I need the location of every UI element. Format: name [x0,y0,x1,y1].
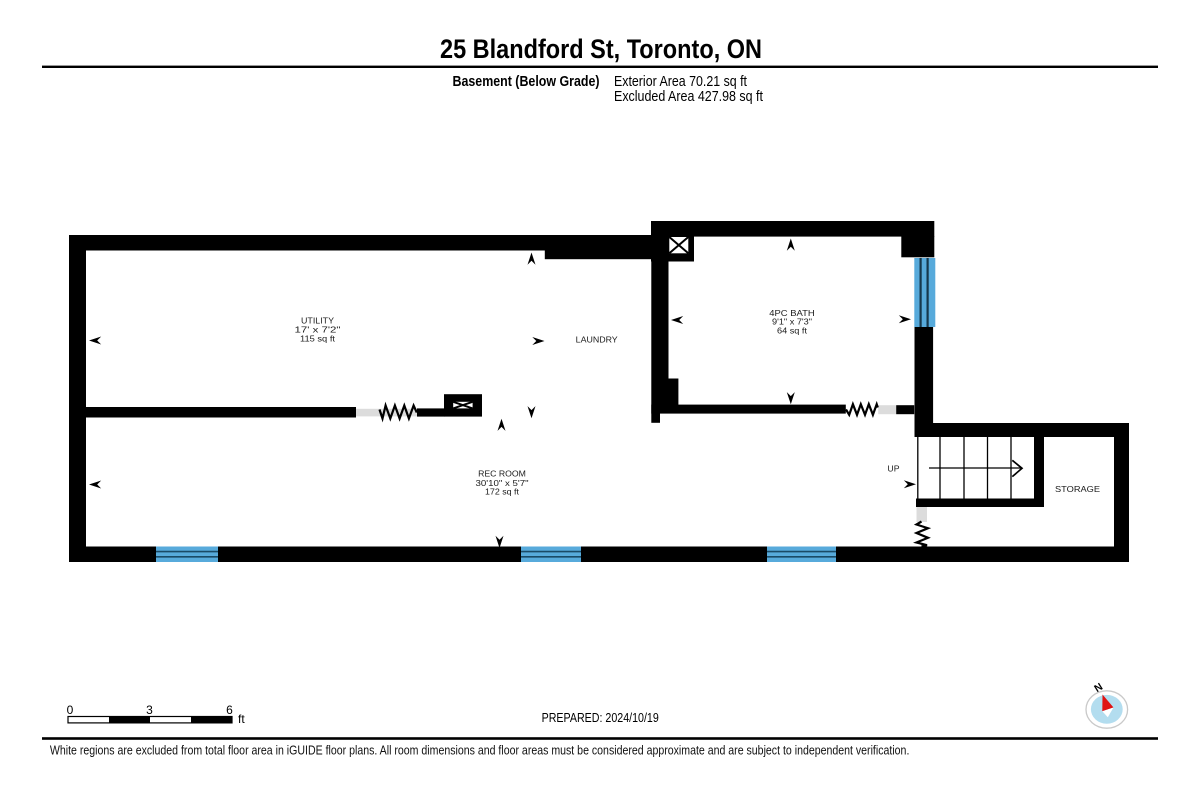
svg-text:STORAGE: STORAGE [1055,484,1100,494]
svg-text:UP: UP [887,464,900,474]
svg-text:172 sq ft: 172 sq ft [485,487,520,497]
svg-text:Basement (Below Grade): Basement (Below Grade) [453,74,600,90]
svg-text:3: 3 [146,703,153,717]
svg-text:115 sq ft: 115 sq ft [300,333,336,343]
svg-text:64 sq ft: 64 sq ft [777,325,808,335]
svg-text:Exterior Area 70.21 sq ft: Exterior Area 70.21 sq ft [614,74,747,90]
svg-text:Excluded Area 427.98 sq ft: Excluded Area 427.98 sq ft [614,89,763,105]
svg-text:White regions are excluded fro: White regions are excluded from total fl… [50,744,910,758]
svg-text:6: 6 [226,703,233,717]
svg-text:LAUNDRY: LAUNDRY [576,335,618,345]
svg-text:25 Blandford St, Toronto, ON: 25 Blandford St, Toronto, ON [440,34,762,64]
svg-text:PREPARED: 2024/10/19: PREPARED: 2024/10/19 [542,710,659,725]
svg-text:ft: ft [238,712,245,726]
svg-text:0: 0 [67,703,74,717]
